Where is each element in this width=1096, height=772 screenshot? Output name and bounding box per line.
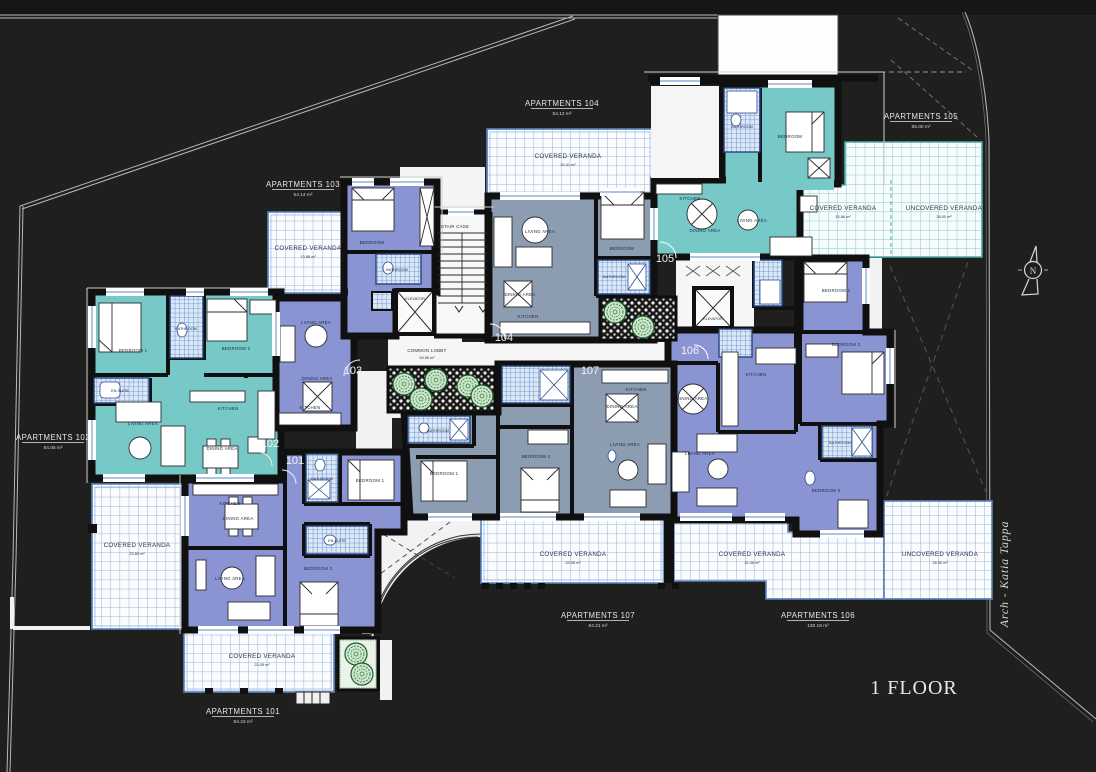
svg-text:APARTMENTS 102: APARTMENTS 102	[16, 433, 90, 442]
svg-text:APARTMENTS 104: APARTMENTS 104	[525, 99, 599, 108]
svg-text:BATHROOM: BATHROOM	[603, 275, 625, 279]
svg-text:LIVING AREA: LIVING AREA	[301, 320, 331, 325]
svg-text:BEDROOM 1: BEDROOM 1	[430, 471, 459, 476]
svg-text:LIVING AREA: LIVING AREA	[215, 576, 245, 581]
svg-text:20.41 m²: 20.41 m²	[560, 162, 576, 167]
svg-text:APARTMENTS 101: APARTMENTS 101	[206, 707, 280, 716]
svg-text:54.14 m²: 54.14 m²	[294, 192, 313, 198]
svg-text:KITCHEN: KITCHEN	[517, 314, 538, 319]
svg-text:107: 107	[581, 365, 599, 377]
svg-text:COVERED VERANDA: COVERED VERANDA	[810, 205, 877, 212]
svg-text:UNCOVERED VERANDA: UNCOVERED VERANDA	[902, 551, 979, 558]
svg-text:53.95 m²: 53.95 m²	[420, 356, 436, 360]
svg-text:106: 106	[681, 345, 699, 357]
svg-text:APARTMENTS 106: APARTMENTS 106	[781, 611, 855, 620]
svg-text:KITCHEN: KITCHEN	[625, 387, 646, 392]
svg-text:DINING AREA: DINING AREA	[689, 228, 720, 233]
svg-text:ELEVATOR: ELEVATOR	[703, 317, 723, 321]
svg-text:28.00 m²: 28.00 m²	[932, 560, 948, 565]
svg-text:28.00 m²: 28.00 m²	[936, 214, 952, 219]
svg-text:LIVING AREA: LIVING AREA	[737, 218, 767, 223]
svg-text:BATHROOM: BATHROOM	[386, 268, 408, 272]
svg-text:BEDROOM 1: BEDROOM 1	[119, 348, 148, 353]
svg-text:84.05 m²: 84.05 m²	[44, 445, 63, 451]
svg-text:104: 104	[495, 332, 513, 344]
svg-text:BATHROOM: BATHROOM	[427, 429, 449, 433]
svg-text:ELEVATOR: ELEVATOR	[405, 297, 425, 301]
svg-text:Arch - Katia Tappa: Arch - Katia Tappa	[997, 521, 1011, 629]
svg-text:COMMON LOBBY: COMMON LOBBY	[407, 348, 446, 353]
svg-text:BEDROOM: BEDROOM	[360, 240, 385, 245]
svg-text:N: N	[1030, 266, 1037, 276]
svg-text:APARTMENTS 103: APARTMENTS 103	[266, 180, 340, 189]
svg-text:DINING AREA: DINING AREA	[606, 404, 637, 409]
svg-text:KITCHEN: KITCHEN	[679, 196, 700, 201]
svg-text:COVERED VERANDA: COVERED VERANDA	[275, 245, 342, 252]
svg-text:EN-SUITE: EN-SUITE	[328, 539, 346, 543]
svg-text:APARTMENTS 105: APARTMENTS 105	[884, 112, 958, 121]
svg-text:102: 102	[261, 438, 279, 450]
svg-text:LIVING AREA: LIVING AREA	[525, 229, 555, 234]
svg-text:BATHROOM: BATHROOM	[175, 327, 197, 331]
svg-text:BEDROOM 2: BEDROOM 2	[522, 454, 551, 459]
svg-text:KITCHEN: KITCHEN	[217, 406, 238, 411]
svg-text:23.80 m²: 23.80 m²	[129, 551, 145, 556]
svg-text:COVERED VERANDA: COVERED VERANDA	[540, 551, 607, 558]
svg-text:BEDROOM 1: BEDROOM 1	[822, 288, 851, 293]
svg-text:DINING AREA: DINING AREA	[504, 292, 535, 297]
svg-text:APARTMENTS 107: APARTMENTS 107	[561, 611, 635, 620]
svg-text:54.12 m²: 54.12 m²	[553, 111, 572, 117]
svg-text:BATHROOM: BATHROOM	[731, 125, 753, 129]
svg-text:BEDROOM 1: BEDROOM 1	[356, 478, 385, 483]
svg-text:84.23 m²: 84.23 m²	[234, 719, 253, 725]
svg-text:DINING AREA: DINING AREA	[301, 376, 332, 381]
svg-text:101: 101	[286, 455, 304, 467]
svg-text:BEDROOM: BEDROOM	[610, 246, 635, 251]
svg-text:1 FLOOR: 1 FLOOR	[870, 677, 958, 699]
svg-text:BATHROOM: BATHROOM	[829, 441, 851, 445]
svg-text:BEDROOM: BEDROOM	[778, 134, 803, 139]
svg-text:84.21 m²: 84.21 m²	[589, 623, 608, 629]
svg-text:BEDROOM 2: BEDROOM 2	[304, 566, 333, 571]
svg-text:BEDROOM 3: BEDROOM 3	[812, 488, 841, 493]
svg-text:DINING AREA: DINING AREA	[676, 396, 707, 401]
svg-text:105: 105	[656, 253, 674, 265]
svg-text:LIVING AREA: LIVING AREA	[610, 442, 640, 447]
svg-text:COVERED VERANDA: COVERED VERANDA	[229, 653, 296, 660]
svg-text:DINING AREA: DINING AREA	[222, 516, 253, 521]
svg-text:LIVING AREA: LIVING AREA	[128, 421, 158, 426]
svg-text:120.19 m²: 120.19 m²	[807, 623, 829, 629]
svg-text:55.00 m²: 55.00 m²	[912, 124, 931, 130]
svg-text:COVERED VERANDA: COVERED VERANDA	[104, 542, 171, 549]
svg-text:KITCHEN: KITCHEN	[299, 405, 320, 410]
svg-text:COVERED VERANDA: COVERED VERANDA	[535, 153, 602, 160]
svg-text:KITCHEN: KITCHEN	[219, 501, 240, 506]
svg-text:33.98 m²: 33.98 m²	[565, 560, 581, 565]
svg-text:KITCHEN: KITCHEN	[745, 372, 766, 377]
svg-text:COVERED VERANDA: COVERED VERANDA	[719, 551, 786, 558]
svg-text:31.06 m²: 31.06 m²	[744, 560, 760, 565]
svg-text:LIVING AREA: LIVING AREA	[685, 451, 715, 456]
svg-text:STAIR CASE: STAIR CASE	[441, 224, 469, 229]
svg-text:13.88 m²: 13.88 m²	[300, 254, 316, 259]
svg-text:BATHROOM: BATHROOM	[311, 477, 333, 481]
svg-text:EN-SUITE: EN-SUITE	[111, 389, 129, 393]
svg-text:103: 103	[344, 365, 362, 377]
svg-text:BEDROOM 2: BEDROOM 2	[222, 346, 251, 351]
svg-text:15.86 m²: 15.86 m²	[835, 214, 851, 219]
svg-text:UNCOVERED VERANDA: UNCOVERED VERANDA	[906, 205, 983, 212]
svg-text:DINING AREA: DINING AREA	[206, 446, 237, 451]
svg-text:23.09 m²: 23.09 m²	[254, 662, 270, 667]
svg-text:BEDROOM 2: BEDROOM 2	[832, 342, 861, 347]
